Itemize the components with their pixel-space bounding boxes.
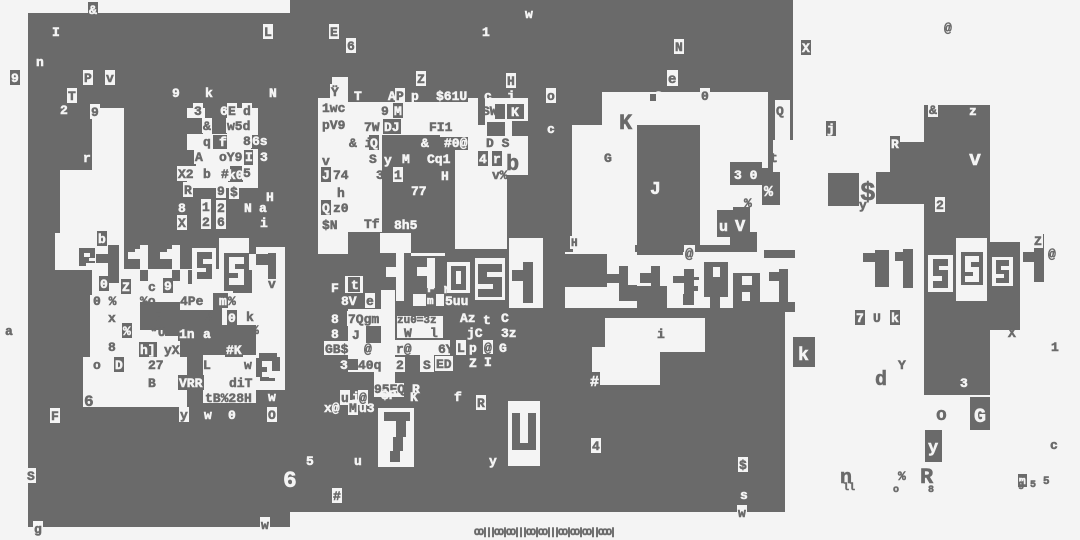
svg-text:G: G: [499, 341, 507, 356]
svg-text:6: 6: [283, 468, 297, 494]
svg-text:Tf: Tf: [364, 217, 380, 232]
svg-text:p: p: [469, 341, 477, 356]
svg-text:6: 6: [347, 39, 355, 54]
svg-text:oY9: oY9: [219, 150, 243, 165]
svg-text:h]: h]: [140, 343, 156, 358]
svg-text:@: @: [685, 247, 694, 263]
svg-text:%: %: [764, 184, 774, 201]
svg-text:w: w: [204, 408, 212, 423]
svg-text:1: 1: [482, 25, 490, 40]
svg-text:4Pe: 4Pe: [180, 294, 204, 309]
svg-text:w: w: [738, 506, 746, 521]
svg-text:J: J: [650, 180, 661, 200]
svg-text:1: 1: [394, 168, 402, 183]
svg-text:#: #: [333, 489, 341, 504]
svg-text:2: 2: [396, 358, 404, 373]
svg-text:k: k: [205, 86, 213, 101]
svg-text:8: 8: [243, 134, 251, 149]
svg-text:#K: #K: [226, 343, 242, 358]
svg-text:K: K: [511, 105, 519, 120]
svg-text:f: f: [454, 390, 462, 405]
svg-text:&: &: [203, 119, 211, 134]
svg-text:0: 0: [228, 311, 236, 326]
svg-text:#0@: #0@: [444, 136, 468, 151]
svg-text:5: 5: [1043, 476, 1050, 488]
svg-text:Q: Q: [370, 136, 378, 151]
svg-text:P: P: [155, 310, 163, 325]
svg-text:r: r: [83, 151, 91, 166]
svg-text:r: r: [493, 152, 501, 167]
svg-text:C: C: [501, 311, 509, 326]
svg-text:8: 8: [331, 327, 339, 342]
svg-text:&: &: [929, 103, 937, 118]
svg-text:Z: Z: [469, 356, 477, 371]
svg-text:S: S: [423, 358, 431, 373]
svg-text:1wc: 1wc: [322, 101, 346, 116]
svg-text:D S: D S: [486, 136, 510, 151]
svg-text:w5d: w5d: [227, 119, 250, 134]
svg-text:7W: 7W: [364, 120, 380, 135]
svg-text:W: W: [404, 326, 412, 341]
svg-text:9: 9: [91, 105, 99, 120]
svg-text:@: @: [944, 21, 952, 36]
svg-text:c: c: [484, 89, 492, 104]
svg-text:i: i: [657, 327, 665, 342]
svg-text:@: @: [484, 341, 492, 356]
svg-text:A: A: [195, 150, 203, 165]
svg-text:m: m: [427, 296, 434, 308]
svg-text:M: M: [394, 104, 402, 119]
svg-text:F: F: [51, 409, 59, 424]
svg-text:Az: Az: [460, 311, 476, 326]
svg-text:g: g: [34, 522, 42, 537]
svg-text:FI1: FI1: [429, 120, 453, 135]
svg-text:F: F: [331, 281, 339, 296]
svg-text:H: H: [266, 190, 274, 205]
svg-text:L: L: [264, 25, 272, 40]
svg-text:j: j: [507, 89, 515, 104]
svg-text:v: v: [106, 71, 114, 86]
svg-text:a: a: [5, 324, 13, 339]
svg-text:m: m: [219, 294, 227, 309]
svg-text:$: $: [230, 185, 238, 200]
svg-text:k0: k0: [228, 168, 244, 183]
svg-text:%: %: [898, 469, 906, 484]
svg-text:X2: X2: [178, 167, 194, 182]
svg-text:c: c: [547, 122, 555, 137]
svg-text:$61U: $61U: [436, 89, 467, 104]
svg-text:diT: diT: [229, 376, 253, 391]
svg-text:t: t: [351, 278, 359, 293]
svg-text:0: 0: [100, 277, 108, 292]
svg-text:k: k: [798, 346, 809, 366]
svg-text:74: 74: [333, 168, 349, 183]
svg-text:y: y: [180, 408, 188, 423]
svg-text:x@: x@: [324, 401, 340, 416]
svg-text:f: f: [219, 135, 227, 150]
svg-text:T: T: [68, 89, 76, 104]
svg-text:L: L: [203, 358, 211, 373]
svg-text:4: 4: [592, 439, 600, 454]
svg-text:3 0: 3 0: [734, 168, 758, 183]
svg-text:G: G: [974, 406, 986, 429]
svg-text:K: K: [410, 390, 418, 405]
svg-text:b: b: [203, 167, 211, 182]
svg-text:X: X: [1008, 326, 1016, 341]
svg-text:$N: $N: [322, 218, 338, 233]
svg-text:5uu: 5uu: [445, 294, 468, 309]
svg-text:e: e: [668, 72, 676, 88]
svg-text:u: u: [719, 219, 728, 236]
svg-text:ED: ED: [436, 357, 452, 372]
svg-text:d: d: [243, 104, 251, 119]
svg-text:%: %: [251, 323, 259, 338]
svg-text:u: u: [341, 391, 349, 406]
svg-text:E: E: [228, 104, 236, 119]
svg-text:9: 9: [11, 71, 19, 86]
svg-text:S: S: [369, 152, 377, 167]
svg-text:8: 8: [108, 340, 116, 355]
svg-text:y: y: [489, 454, 497, 469]
svg-text:Ÿ: Ÿ: [331, 85, 339, 100]
svg-text:3: 3: [194, 104, 202, 119]
svg-text:F: F: [427, 281, 435, 296]
svg-text:q: q: [203, 135, 211, 150]
svg-text:t: t: [770, 151, 778, 166]
svg-text:J: J: [322, 168, 330, 183]
svg-text:6Y: 6Y: [438, 342, 454, 357]
svg-text:jC: jC: [467, 326, 483, 341]
svg-text:p: p: [411, 89, 419, 104]
svg-text:3: 3: [260, 150, 268, 165]
svg-text:Z: Z: [417, 72, 425, 87]
svg-text:u: u: [354, 454, 362, 469]
svg-text:T: T: [354, 89, 362, 104]
svg-text:3: 3: [960, 376, 968, 391]
svg-text:pV9: pV9: [322, 118, 346, 133]
svg-text:9: 9: [164, 279, 172, 294]
svg-text:v: v: [969, 149, 981, 172]
svg-text:40q: 40q: [358, 358, 381, 373]
svg-text:2: 2: [202, 215, 210, 230]
svg-text:7Qgm: 7Qgm: [348, 312, 379, 327]
svg-text:w: w: [261, 518, 269, 533]
svg-text:0: 0: [701, 89, 709, 104]
svg-text:w: w: [244, 358, 252, 373]
svg-text:c: c: [148, 280, 156, 295]
svg-text:DJ: DJ: [384, 120, 400, 135]
svg-text:1: 1: [1051, 340, 1059, 355]
svg-text:5: 5: [306, 454, 314, 469]
svg-text:a: a: [203, 327, 211, 342]
svg-text:u3: u3: [359, 401, 375, 416]
svg-text:A: A: [388, 89, 396, 104]
svg-text:j: j: [827, 122, 835, 137]
svg-text:*U: *U: [150, 325, 166, 340]
svg-text:y: y: [928, 439, 938, 458]
svg-text:o: o: [547, 89, 555, 104]
svg-text:N: N: [269, 86, 277, 101]
svg-text:c: c: [1050, 438, 1058, 453]
svg-text:R: R: [477, 396, 485, 411]
svg-text:r@: r@: [396, 342, 412, 357]
svg-text:27: 27: [148, 358, 164, 373]
svg-text:$P: $P: [381, 388, 397, 403]
svg-text:9: 9: [217, 184, 225, 199]
svg-text:8: 8: [928, 485, 934, 496]
svg-text:4: 4: [479, 152, 487, 167]
svg-text:77: 77: [411, 184, 427, 199]
svg-text:X: X: [802, 41, 810, 56]
svg-text:d: d: [875, 369, 887, 392]
svg-text:h: h: [337, 186, 345, 201]
svg-text:M: M: [402, 152, 410, 167]
svg-text:8h5: 8h5: [394, 218, 418, 233]
svg-text:%: %: [744, 196, 752, 211]
svg-text:g 5: g 5: [1018, 480, 1036, 491]
svg-text:B: B: [148, 376, 156, 391]
svg-text:Q: Q: [776, 104, 784, 119]
svg-text:X: X: [178, 216, 186, 231]
svg-text:z0: z0: [333, 201, 349, 216]
svg-text:Z: Z: [1034, 234, 1042, 249]
svg-text:e: e: [366, 294, 374, 309]
svg-text:9: 9: [172, 86, 180, 101]
svg-text:t: t: [483, 313, 491, 328]
svg-text:6: 6: [217, 215, 225, 230]
svg-text:s: s: [740, 488, 748, 503]
svg-text:1n: 1n: [179, 327, 195, 342]
svg-text:6s: 6s: [252, 134, 268, 149]
svg-text:0 %: 0 %: [93, 294, 117, 309]
svg-text:8: 8: [331, 312, 339, 327]
svg-text:H: H: [507, 74, 515, 89]
svg-text:H: H: [571, 238, 578, 250]
svg-text:y: y: [384, 153, 392, 168]
svg-text:#: #: [590, 374, 599, 391]
svg-text:VRR: VRR: [179, 376, 203, 391]
svg-text:M: M: [349, 401, 357, 416]
svg-text:9: 9: [381, 104, 389, 119]
svg-text:ll: ll: [843, 482, 855, 494]
svg-text:%o: %o: [140, 294, 156, 309]
svg-text:w: w: [525, 7, 533, 22]
svg-text:@: @: [1048, 247, 1056, 262]
svg-text:L: L: [457, 341, 465, 356]
svg-text:E: E: [330, 25, 338, 40]
svg-text:Z: Z: [122, 280, 130, 295]
svg-text:H: H: [441, 169, 449, 184]
svg-text:o: o: [93, 358, 101, 373]
svg-text:I: I: [52, 25, 60, 40]
svg-text:V: V: [735, 218, 746, 237]
svg-text:GB$: GB$: [325, 342, 349, 357]
svg-text:N: N: [675, 40, 683, 55]
svg-text:SW: SW: [482, 104, 498, 119]
svg-text:2: 2: [936, 198, 944, 213]
svg-text:o: o: [893, 485, 899, 496]
svg-text:N: N: [244, 201, 252, 216]
svg-text:v: v: [322, 154, 330, 169]
svg-text:i: i: [260, 216, 268, 231]
svg-text:yX: yX: [164, 343, 180, 358]
svg-text:7: 7: [856, 311, 864, 326]
svg-text:tB%28H: tB%28H: [205, 391, 252, 406]
svg-text:x: x: [108, 311, 116, 326]
svg-text:6: 6: [84, 393, 94, 411]
svg-text:OO|||OO|OO|||OO|OO|||OO|OO|OO|: OO|||OO|OO|||OO|OO|||OO|OO|OO||OOO|: [474, 527, 614, 539]
svg-text:3z: 3z: [501, 326, 517, 341]
svg-text:D: D: [115, 358, 123, 373]
svg-text:G: G: [604, 151, 612, 166]
svg-text:@: @: [364, 342, 372, 357]
svg-text:8: 8: [178, 201, 186, 216]
svg-text:Y: Y: [898, 358, 906, 373]
svg-text:w: w: [268, 390, 276, 405]
svg-text:K: K: [619, 111, 633, 136]
svg-text:I: I: [245, 150, 253, 165]
svg-text:S: S: [27, 469, 35, 484]
svg-text:3: 3: [376, 168, 384, 183]
svg-text:n: n: [36, 55, 44, 70]
svg-text:I: I: [484, 355, 492, 370]
svg-text:Q: Q: [322, 201, 330, 216]
svg-text:P: P: [84, 71, 92, 86]
svg-text:6: 6: [220, 104, 228, 119]
svg-text:v: v: [268, 277, 276, 292]
svg-text:Cq1: Cq1: [427, 152, 451, 167]
svg-text:o: o: [936, 406, 947, 426]
svg-text:2: 2: [60, 103, 68, 118]
svg-text:&: &: [89, 3, 97, 18]
svg-text:U: U: [873, 311, 881, 326]
svg-text:z: z: [969, 104, 977, 119]
svg-text:P: P: [396, 89, 404, 104]
svg-text:0: 0: [228, 408, 236, 423]
svg-text:%: %: [228, 294, 236, 309]
svg-text:1: 1: [202, 200, 210, 215]
svg-text:O: O: [268, 408, 276, 423]
svg-text:J: J: [352, 328, 360, 343]
svg-text:l: l: [430, 326, 438, 341]
svg-text:R: R: [891, 137, 899, 152]
svg-text:3: 3: [340, 358, 348, 373]
svg-text:b: b: [506, 152, 519, 177]
svg-text:8V: 8V: [341, 294, 357, 309]
svg-text:4: 4: [205, 310, 213, 325]
svg-text:R: R: [184, 183, 192, 198]
svg-text:ô: ô: [958, 240, 964, 252]
svg-text:$: $: [739, 458, 747, 473]
svg-text:k: k: [891, 311, 899, 326]
svg-text:%: %: [123, 324, 131, 339]
svg-text:&: &: [421, 136, 429, 151]
svg-text:5: 5: [243, 166, 251, 181]
svg-text:2: 2: [217, 201, 225, 216]
svg-text:b: b: [98, 232, 106, 247]
svg-text:y: y: [859, 198, 867, 213]
